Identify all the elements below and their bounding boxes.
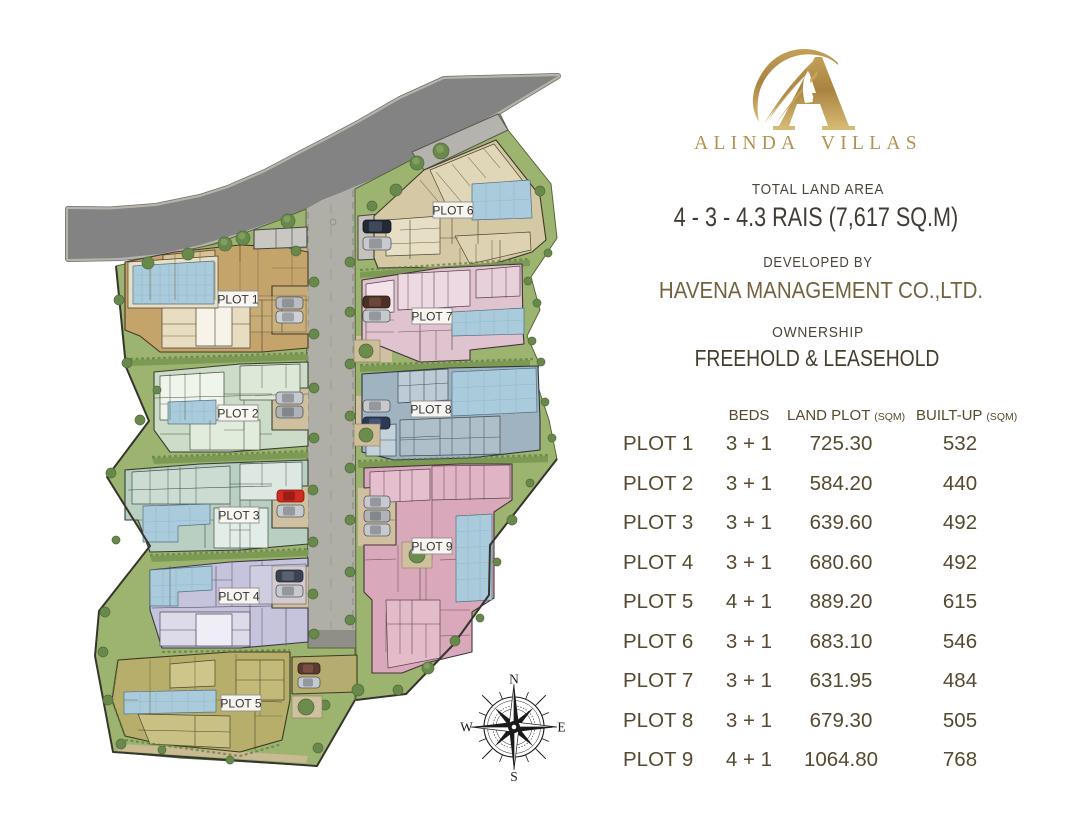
svg-text:PLOT 2: PLOT 2 [217,406,258,420]
svg-text:N: N [509,672,519,687]
svg-text:PLOT 6: PLOT 6 [432,203,473,217]
svg-text:PLOT 1: PLOT 1 [217,292,258,306]
svg-text:S: S [510,769,518,784]
svg-text:PLOT 5: PLOT 5 [220,696,261,710]
svg-text:E: E [557,720,565,735]
svg-text:PLOT 4: PLOT 4 [218,589,259,603]
svg-text:W: W [460,720,473,735]
svg-text:PLOT 9: PLOT 9 [411,539,452,553]
svg-text:PLOT 7: PLOT 7 [411,309,452,323]
svg-text:PLOT 8: PLOT 8 [410,402,451,416]
svg-text:PLOT 3: PLOT 3 [218,508,259,522]
